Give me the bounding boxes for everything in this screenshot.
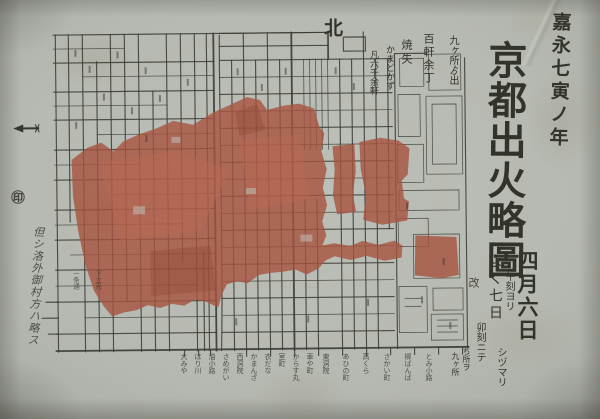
street-name-label: 室町 xyxy=(278,353,285,367)
street-name-label: さめがい xyxy=(222,353,229,381)
map-title: 京都出火略圖 xyxy=(483,40,524,280)
street-name-label: 高くら xyxy=(362,353,369,374)
fire-tiny-note-2: 九ヶ所 xyxy=(451,352,459,376)
street-name-label: からす丸 xyxy=(292,353,299,381)
street-name-label: さかい町 xyxy=(383,353,390,381)
fire-end-hour-label: 卯刻ニテ xyxy=(474,322,484,362)
fire-next-day-label: よく七日 xyxy=(488,254,502,322)
censor-mark: 改 xyxy=(468,277,479,288)
street-name-label: 油小路 xyxy=(208,353,215,374)
street-name-label: 車や町 xyxy=(306,353,313,374)
street-name-label: 西洞院 xyxy=(236,353,243,374)
fire-date-label: 四月六日 xyxy=(517,250,538,342)
street-name-label: 東洞院 xyxy=(322,353,329,374)
fire-start-hour-label: 午刻ヨリ xyxy=(503,271,513,311)
street-name-label: 柳ばんば xyxy=(404,353,411,381)
paper-crease xyxy=(496,0,588,66)
stat-households-label: かまどかず xyxy=(384,45,393,90)
map-sheet: 嘉永七寅ノ年 京都出火略圖 改 四月六日 午刻ヨリ よく七日 シヅマリ 卯刻ニテ… xyxy=(0,0,600,419)
street-name-label: ほり川 xyxy=(194,353,201,374)
stat-blocks-label: 百軒余丁 xyxy=(423,33,434,85)
stat-households-count-label: 凡六千余軒 xyxy=(368,50,377,95)
street-name-label: 大みや xyxy=(180,353,187,374)
street-name-label: かまんざ xyxy=(250,353,257,381)
street-name-label: あひの町 xyxy=(342,353,349,381)
inner-street-label: 下立売 xyxy=(94,270,101,290)
street-name-label: 衣だな xyxy=(264,353,271,374)
fire-tiny-note-1: ち所ヲ xyxy=(462,347,470,371)
seal-stamp: ㊞ xyxy=(10,190,24,204)
stat-origins-label: 九ヶ所ゟ出 xyxy=(447,35,457,85)
fire-calm-label: シヅマリ xyxy=(495,347,505,387)
stat-burned-label: 焼失 xyxy=(401,39,412,67)
west-arrow-icon xyxy=(13,124,39,132)
north-indicator: 北 xyxy=(322,18,341,37)
inner-street-label: 一条通 xyxy=(72,270,79,290)
street-name-label: とみ小路 xyxy=(425,353,432,381)
